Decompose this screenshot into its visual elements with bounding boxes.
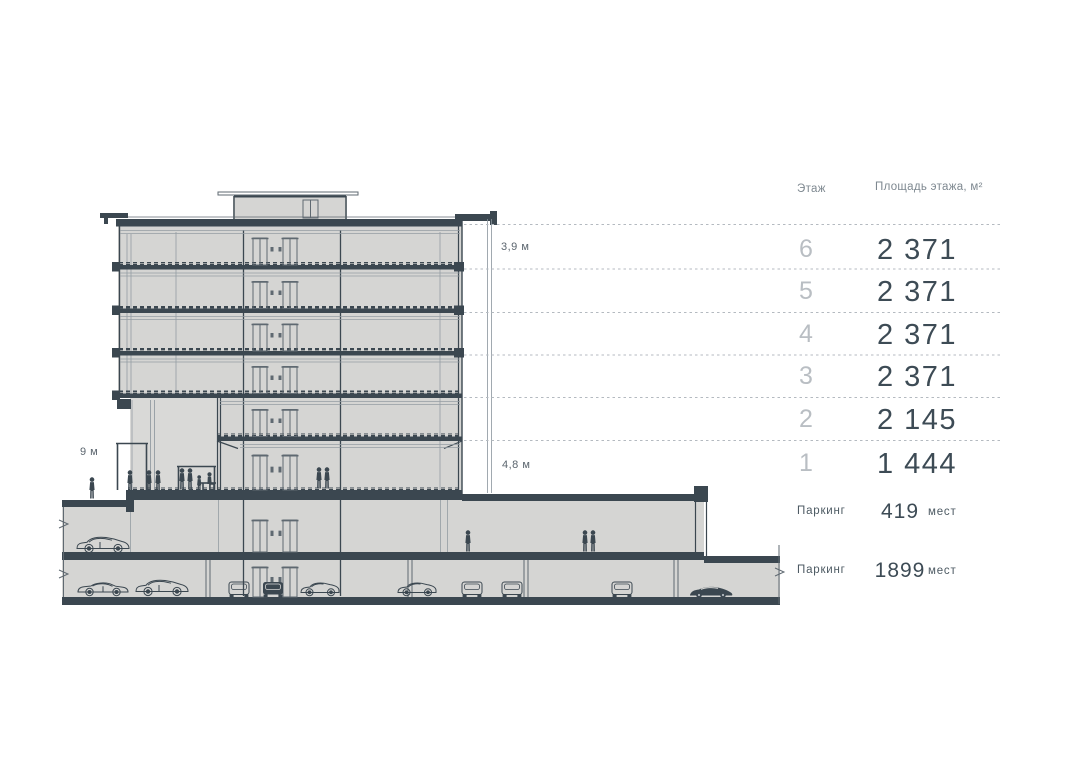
dimension-overhang-height-label: 9 м [80,446,98,458]
floor-number: 1 [793,449,819,478]
soffit-sign [117,399,131,409]
floor-area-value: 1 444 [852,448,982,481]
person-icon [89,477,94,498]
floor-area-value: 2 371 [852,276,982,309]
floor-number: 6 [793,235,819,264]
podium-parapet [694,486,708,502]
floor-number: 4 [793,320,819,349]
dimension-first-floor-height-label: 4,8 м [502,459,530,471]
street-slab [62,500,128,507]
level-minus1-slab [62,552,704,560]
floor-number: 2 [793,405,819,434]
floor-number: 5 [793,277,819,306]
floor-area-value: 2 145 [852,404,982,437]
parking-label: Паркинг [797,505,846,517]
table-header-area: Площадь этажа, м² [875,181,983,193]
table-header-floor: Этаж [797,183,826,195]
dimension-floor-height-label: 3,9 м [501,241,529,253]
architectural-section-page: Этаж Площадь этажа, м² 6 2 371 5 2 371 4… [0,0,1072,768]
floor-area-value: 2 371 [852,361,982,394]
podium-roof-slab [462,494,696,501]
parking-label: Паркинг [797,564,846,576]
floor-area-value: 2 371 [852,234,982,267]
parking-unit: мест [928,506,957,518]
parking-unit: мест [928,565,957,577]
plaza-slab [128,490,462,500]
terrace-slab [704,556,780,563]
floor-number: 3 [793,362,819,391]
floor-area-value: 2 371 [852,319,982,352]
foundation-slab [62,597,780,605]
